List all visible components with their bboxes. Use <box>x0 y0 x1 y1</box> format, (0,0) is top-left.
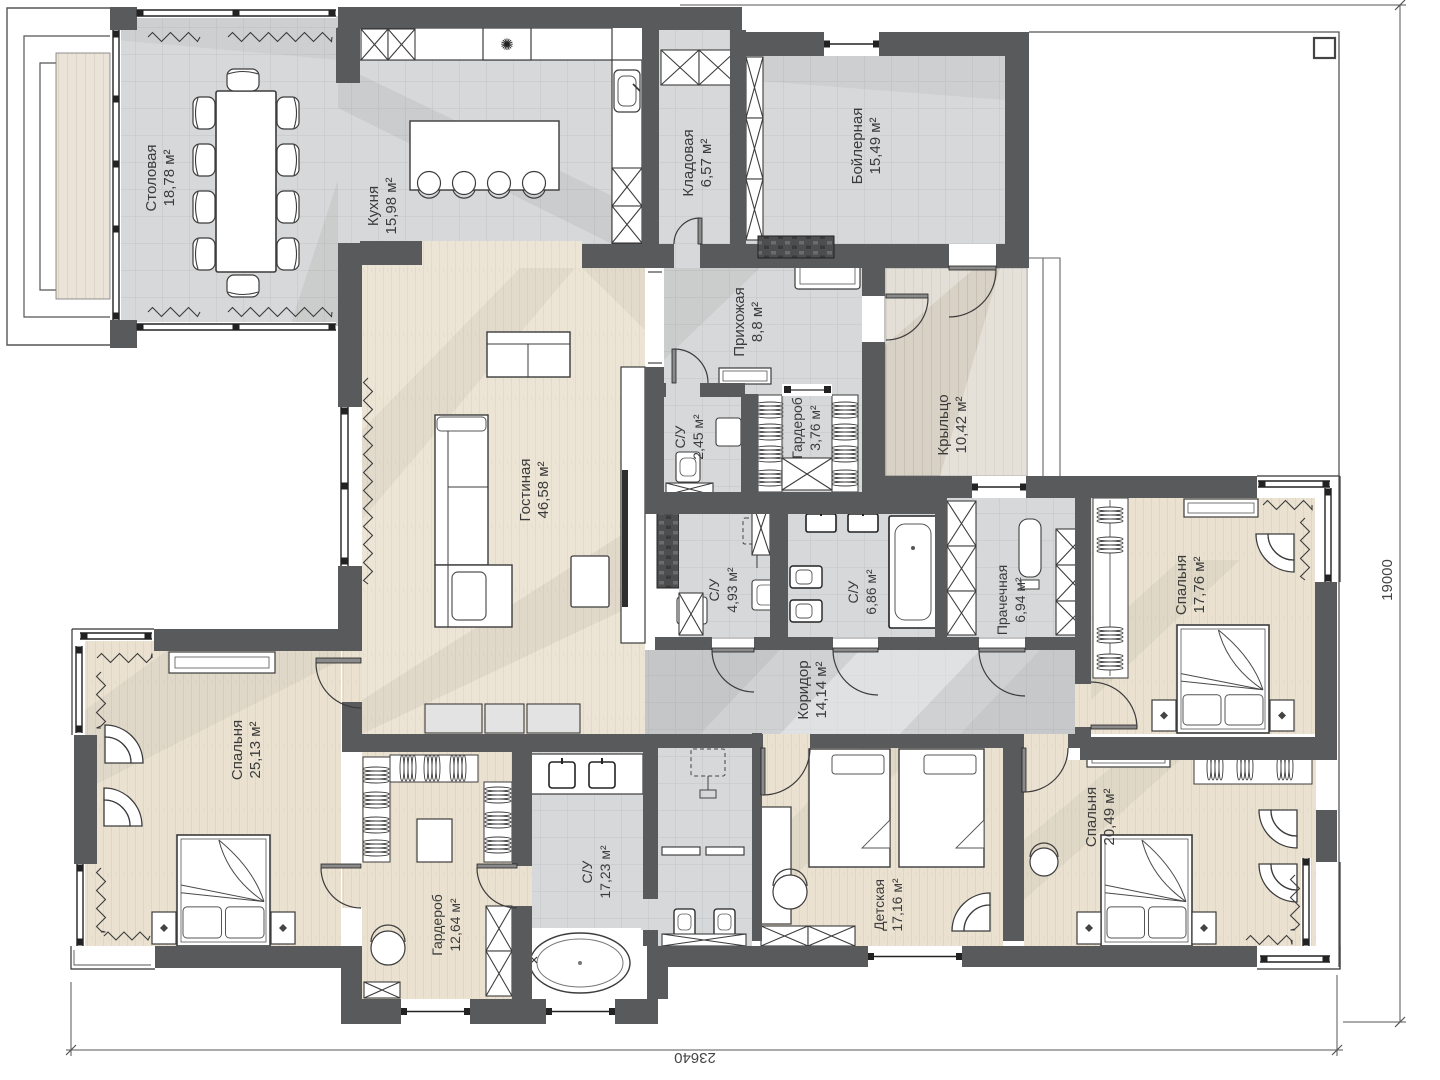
svg-text:Спальня25,13 м²: Спальня25,13 м² <box>229 720 264 780</box>
svg-text:23640: 23640 <box>674 1049 716 1066</box>
svg-text:Спальня17,76 м²: Спальня17,76 м² <box>1173 555 1208 615</box>
svg-text:Коридор14,14 м²: Коридор14,14 м² <box>795 660 830 719</box>
svg-text:Крыльцо10,42 м²: Крыльцо10,42 м² <box>935 394 970 455</box>
svg-text:Бойлерная15,49 м²: Бойлерная15,49 м² <box>849 108 884 185</box>
svg-text:19000: 19000 <box>1379 559 1396 601</box>
svg-text:Столовая18,78 м²: Столовая18,78 м² <box>143 144 178 211</box>
svg-text:✺: ✺ <box>500 37 513 54</box>
svg-text:Кухня15,98 м²: Кухня15,98 м² <box>365 177 400 234</box>
svg-text:Спальня20,49 м²: Спальня20,49 м² <box>1083 787 1118 847</box>
svg-text:Кладовая6,57 м²: Кладовая6,57 м² <box>680 129 715 196</box>
svg-text:Гостиная46,58 м²: Гостиная46,58 м² <box>517 459 552 522</box>
